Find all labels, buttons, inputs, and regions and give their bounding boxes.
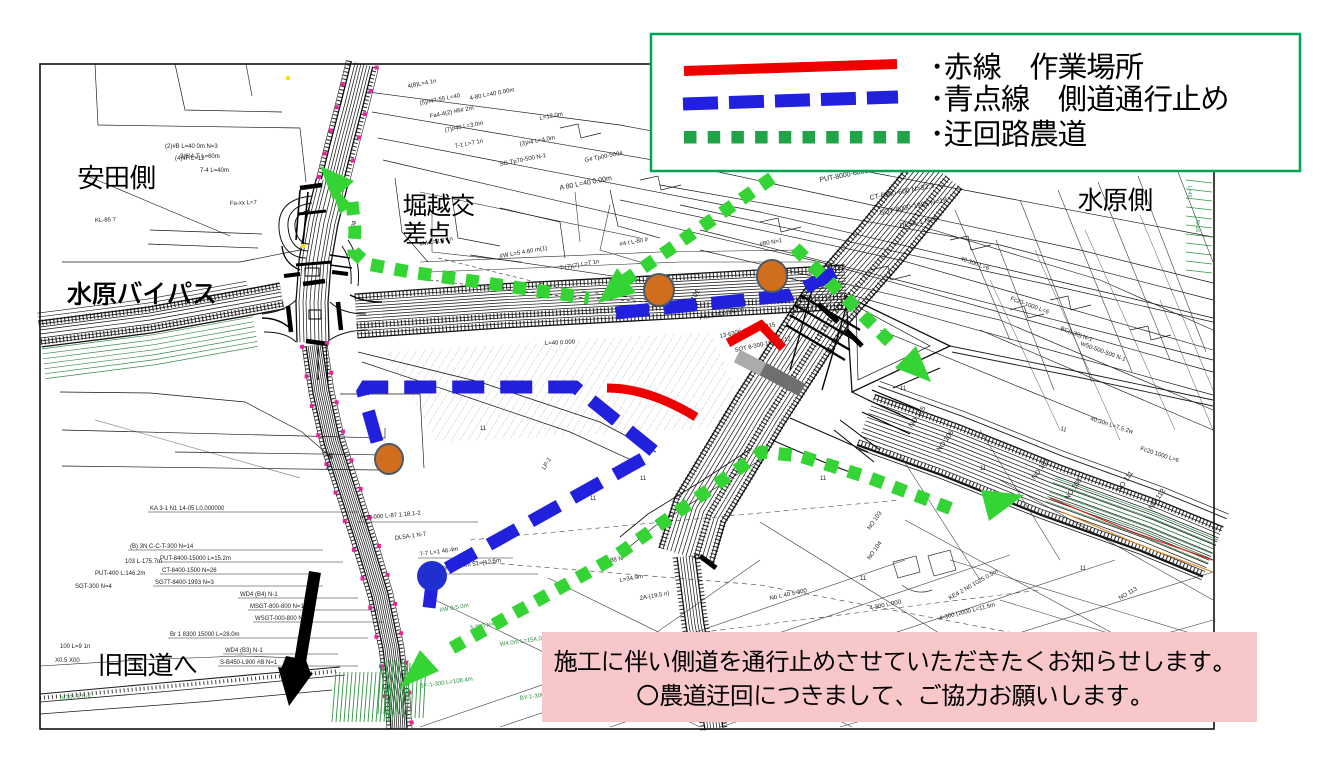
svg-text:CT-8400-1500 N=26: CT-8400-1500 N=26 (162, 568, 217, 574)
svg-text:(B) 3N C-C-T-300 N=14: (B) 3N C-C-T-300 N=14 (130, 544, 194, 550)
svg-text:11: 11 (590, 496, 597, 502)
svg-text:X0.5 X00: X0.5 X00 (55, 658, 80, 664)
svg-text:N=16: N=16 (1194, 220, 1200, 232)
svg-text:3(6)4-T L=60m: 3(6)4-T L=60m (180, 154, 220, 160)
svg-text:100 L=9 1n: 100 L=9 1n (60, 644, 90, 650)
svg-text:WD4 (B3) N-1: WD4 (B3) N-1 (225, 648, 263, 654)
svg-text:103 L-175.7m: 103 L-175.7m (125, 559, 162, 565)
svg-text:11: 11 (820, 476, 827, 482)
svg-text:PUT-8400-15000 L=15.2m: PUT-8400-15000 L=15.2m (160, 556, 231, 562)
svg-text:Br 1 8300 15000 L=28.0m: Br 1 8300 15000 L=28.0m (170, 632, 240, 638)
svg-text:11: 11 (480, 426, 487, 432)
svg-text:(2)#B L=40 0m N=3: (2)#B L=40 0m N=3 (165, 144, 218, 150)
svg-text:S-B450-L900 #B N=1: S-B450-L900 #B N=1 (220, 660, 278, 666)
svg-text:11: 11 (980, 466, 987, 472)
svg-text:11: 11 (1080, 566, 1087, 572)
svg-text:SG7T-8400-1993 N=3: SG7T-8400-1993 N=3 (155, 580, 215, 586)
svg-text:11: 11 (640, 476, 647, 482)
svg-text:7-4 L=40m: 7-4 L=40m (200, 168, 229, 174)
svg-text:11: 11 (860, 576, 867, 582)
svg-text:Fa-xx L=7: Fa-xx L=7 (230, 200, 258, 207)
svg-text:MSGT-800-800 N=1: MSGT-800-800 N=1 (250, 604, 305, 610)
svg-text:L=40: L=40 (1186, 186, 1192, 197)
svg-text:11: 11 (900, 386, 907, 392)
svg-text:KL-85 7: KL-85 7 (95, 217, 117, 224)
svg-text:WD4 (B4) N-1: WD4 (B4) N-1 (240, 592, 278, 598)
svg-text:SGT-300 N=4: SGT-300 N=4 (75, 584, 113, 590)
svg-text:PUT-400 L:146.2m: PUT-400 L:146.2m (95, 571, 145, 577)
svg-text:KA 3-1 N1 14-05 L0.000000: KA 3-1 N1 14-05 L0.000000 (150, 506, 225, 512)
